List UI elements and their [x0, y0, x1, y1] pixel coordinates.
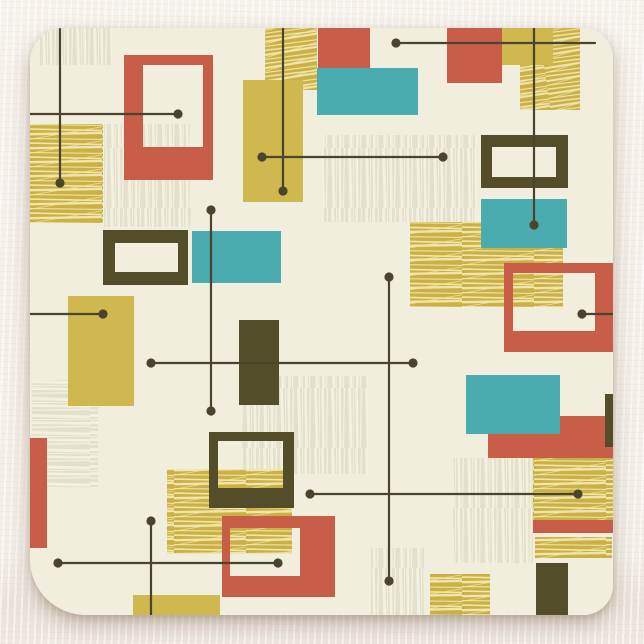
- line-dot: [53, 558, 62, 567]
- olive-rect: [536, 563, 568, 615]
- line-dot: [573, 489, 582, 498]
- line-dot: [146, 516, 155, 525]
- mustard-rect: [133, 595, 220, 615]
- mustard-hatch-rect: [520, 65, 580, 110]
- line-dot: [577, 309, 586, 318]
- teal-rect: [481, 199, 567, 248]
- line-dot: [278, 186, 287, 195]
- line-dot: [206, 406, 215, 415]
- line-dot: [384, 272, 393, 281]
- mustard-hatch-rect: [553, 28, 580, 65]
- photo-backdrop: [0, 0, 644, 644]
- line-dot: [384, 576, 393, 585]
- teal-rect: [192, 231, 281, 283]
- line-dot: [391, 38, 400, 47]
- line-dot: [273, 558, 282, 567]
- line-dot: [305, 489, 314, 498]
- gray-hatch-rect: [40, 28, 112, 65]
- line-dot: [146, 358, 155, 367]
- line-dot: [55, 178, 64, 187]
- red-rect: [447, 28, 502, 83]
- mustard-rect: [243, 80, 303, 202]
- line-dot: [206, 205, 215, 214]
- gray-hatch-rect: [453, 458, 533, 563]
- teal-rect: [317, 68, 418, 115]
- line-dot: [173, 109, 182, 118]
- line-dot: [257, 152, 266, 161]
- olive-rect: [605, 394, 613, 447]
- mustard-hatch-rect: [430, 574, 490, 615]
- teal-rect: [466, 375, 560, 434]
- line-dot: [438, 152, 447, 161]
- line-dot: [98, 309, 107, 318]
- mustard-rect: [502, 28, 553, 65]
- mustard-hatch-rect: [533, 458, 613, 520]
- line-dot: [408, 358, 417, 367]
- gray-hatch-rect: [322, 135, 477, 222]
- mustard-hatch-rect: [30, 124, 103, 223]
- line-dot: [529, 220, 538, 229]
- red-rect: [30, 438, 47, 548]
- mustard-hatch-rect: [535, 537, 612, 558]
- square-coaster: [30, 28, 613, 615]
- coaster-pattern: [30, 28, 613, 615]
- red-rect: [318, 28, 370, 68]
- gray-hatch-rect: [371, 548, 424, 615]
